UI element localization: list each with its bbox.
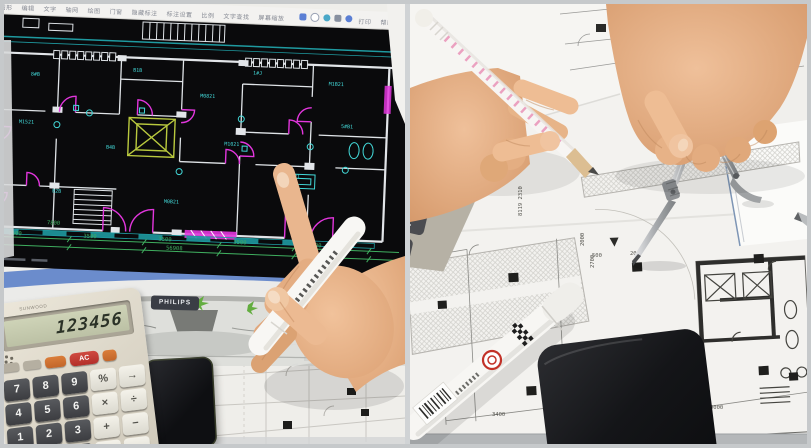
pointing-hand bbox=[4, 4, 405, 444]
marker-cap bbox=[556, 296, 570, 308]
index-finger bbox=[284, 174, 310, 262]
pencil-cap bbox=[415, 9, 433, 27]
smartphone bbox=[535, 327, 720, 444]
right-hand bbox=[606, 4, 807, 194]
dim-label: 2000 bbox=[580, 233, 586, 246]
photo-collage: 图形编辑文字轴网绘图门窗隐藏标注标注设置比例文字查找屏幕缩放 打印帮助 bbox=[0, 0, 811, 448]
dim-label: 2700 bbox=[590, 255, 596, 268]
left-photo-cad-workstation: 图形编辑文字轴网绘图门窗隐藏标注标注设置比例文字查找屏幕缩放 打印帮助 bbox=[4, 4, 405, 444]
dim-label: 3400 bbox=[492, 412, 505, 418]
hand-shape bbox=[260, 171, 405, 397]
right-photo-blueprint-hands: 500 200 3400 9000 30700 8119 2310 2000 2… bbox=[410, 4, 807, 444]
blueprint-scene: 500 200 3400 9000 30700 8119 2310 2000 2… bbox=[410, 4, 807, 444]
brand-logo bbox=[483, 351, 501, 369]
